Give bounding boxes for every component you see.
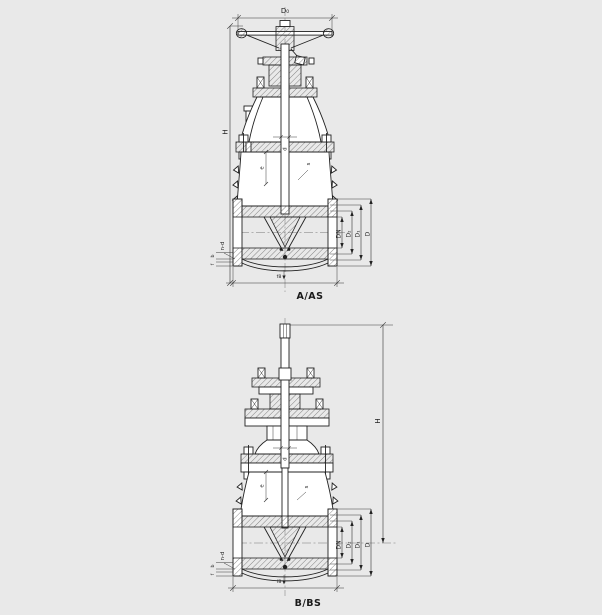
stem-nut — [280, 21, 290, 27]
label-raised-face-a: f — [210, 263, 216, 265]
label-s-a: s — [306, 162, 312, 165]
dims-left-a: n-d b f — [210, 242, 235, 266]
stem-a — [281, 44, 289, 214]
label-e-b: e — [260, 484, 266, 487]
label-flange-od: D — [365, 231, 372, 236]
label-s-b: s — [304, 485, 310, 488]
label-stem-diameter-a: d — [283, 147, 289, 150]
caption-a: A/AS — [296, 291, 323, 302]
label-raised-face-dia-b: D₂ — [346, 541, 353, 549]
label-height-a: H — [222, 129, 230, 134]
label-flange-od-b: D — [365, 542, 372, 547]
valve-b: H — [210, 318, 397, 609]
label-flange-thickness-a: b — [210, 254, 216, 257]
wedge-tip-b — [283, 565, 287, 569]
label-bore-b: DN — [336, 540, 343, 549]
wedge-b — [270, 527, 300, 557]
stem-b — [281, 338, 289, 468]
gate-valve-technical-drawing: D₀ H — [0, 0, 602, 615]
label-bolt-circle: D₁ — [355, 230, 362, 238]
wedge-a — [270, 217, 300, 247]
dim-length-b: f8 — [228, 575, 344, 592]
label-raised-face-dia: D₂ — [346, 230, 353, 238]
label-bore: DN — [336, 229, 343, 238]
label-face-mark-b: f8 — [277, 579, 282, 585]
wedge-tip-a — [283, 255, 287, 259]
caption-b: B/BS — [295, 598, 322, 609]
label-handwheel-diameter: D₀ — [281, 7, 289, 15]
label-face-mark-a: f8 — [277, 274, 282, 280]
label-e-a: e — [260, 166, 266, 169]
label-height-b: H — [374, 418, 382, 423]
label-bolt-holes-a: n-d — [220, 242, 226, 251]
label-bolt-holes-b: n-d — [220, 552, 226, 561]
dims-left-b: n-d b f — [210, 552, 235, 576]
label-raised-face-b: f — [210, 573, 216, 575]
label-stem-diameter-b: d — [283, 457, 289, 460]
stem-top-b — [280, 324, 290, 338]
valve-a: D₀ H — [210, 7, 373, 302]
stem-coupling-b — [279, 368, 291, 380]
label-flange-thickness-b: b — [210, 564, 216, 567]
label-bolt-circle-b: D₁ — [355, 541, 362, 549]
